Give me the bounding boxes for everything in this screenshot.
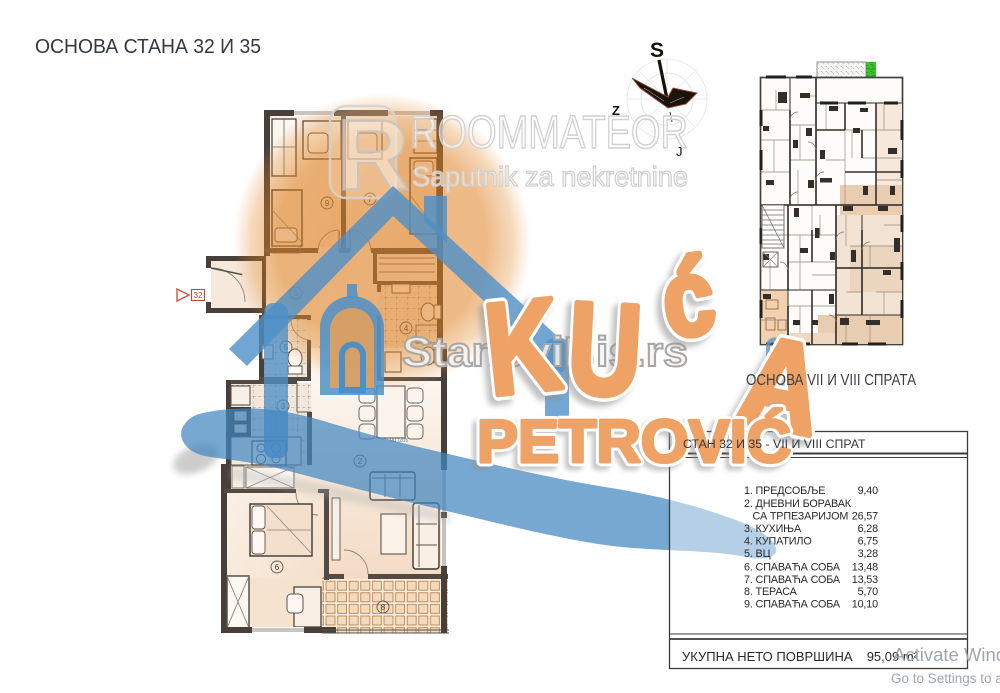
svg-text:ОСНОВА СТАНА 32 И 35: ОСНОВА СТАНА 32 И 35	[35, 35, 261, 58]
svg-text:3. КУХИЊА: 3. КУХИЊА	[744, 523, 802, 535]
svg-text:8: 8	[381, 603, 386, 612]
svg-text:9. СПАВАЋА СОБА: 9. СПАВАЋА СОБА	[744, 599, 841, 611]
svg-text:2. ДНЕВНИ БОРАВАК: 2. ДНЕВНИ БОРАВАК	[744, 498, 852, 510]
svg-text:УКУПНА НЕТО ПОВРШИНА: УКУПНА НЕТО ПОВРШИНА	[682, 649, 853, 664]
svg-text:ROOMMATEOR: ROOMMATEOR	[410, 106, 688, 158]
svg-text:26,57: 26,57	[852, 511, 878, 523]
svg-text:6,28: 6,28	[858, 523, 879, 535]
svg-text:6: 6	[275, 563, 280, 572]
svg-text:ОСНОВА VII И VIII СПРАТА: ОСНОВА VII И VIII СПРАТА	[746, 372, 917, 389]
svg-text:4. КУПАТИЛО: 4. КУПАТИЛО	[744, 536, 812, 548]
svg-text:1. ПРЕДСОБЉЕ: 1. ПРЕДСОБЉЕ	[744, 485, 825, 497]
svg-text:5,70: 5,70	[858, 586, 879, 598]
svg-text:13,48: 13,48	[852, 562, 878, 574]
svg-text:U: U	[565, 274, 646, 424]
svg-text:K: K	[479, 270, 567, 423]
svg-text:6,75: 6,75	[858, 536, 879, 548]
svg-text:9,40: 9,40	[858, 485, 879, 497]
svg-text:5. ВЦ: 5. ВЦ	[744, 548, 771, 560]
svg-text:Activate Windows: Activate Windows	[893, 644, 1000, 665]
svg-text:S: S	[650, 39, 664, 62]
svg-text:32: 32	[194, 291, 203, 300]
svg-text:Saputnik za nekretnine: Saputnik za nekretnine	[412, 161, 688, 192]
svg-text:13,53: 13,53	[852, 574, 878, 586]
svg-text:8. ТЕРАСА: 8. ТЕРАСА	[744, 586, 798, 598]
svg-text:10,10: 10,10	[852, 599, 878, 611]
svg-text:3,28: 3,28	[858, 548, 879, 560]
svg-text:СА ТРПЕЗАРИЈОМ: СА ТРПЕЗАРИЈОМ	[744, 511, 848, 523]
svg-text:Go to Settings to activate Win: Go to Settings to activate Wind	[891, 671, 1000, 686]
svg-text:СТАН 32 И 35 - VII И VIII СПРА: СТАН 32 И 35 - VII И VIII СПРАТ	[683, 437, 866, 451]
svg-text:6. СПАВАЋА СОБА: 6. СПАВАЋА СОБА	[744, 562, 841, 574]
svg-text:7. СПАВАЋА СОБА: 7. СПАВАЋА СОБА	[744, 574, 841, 586]
